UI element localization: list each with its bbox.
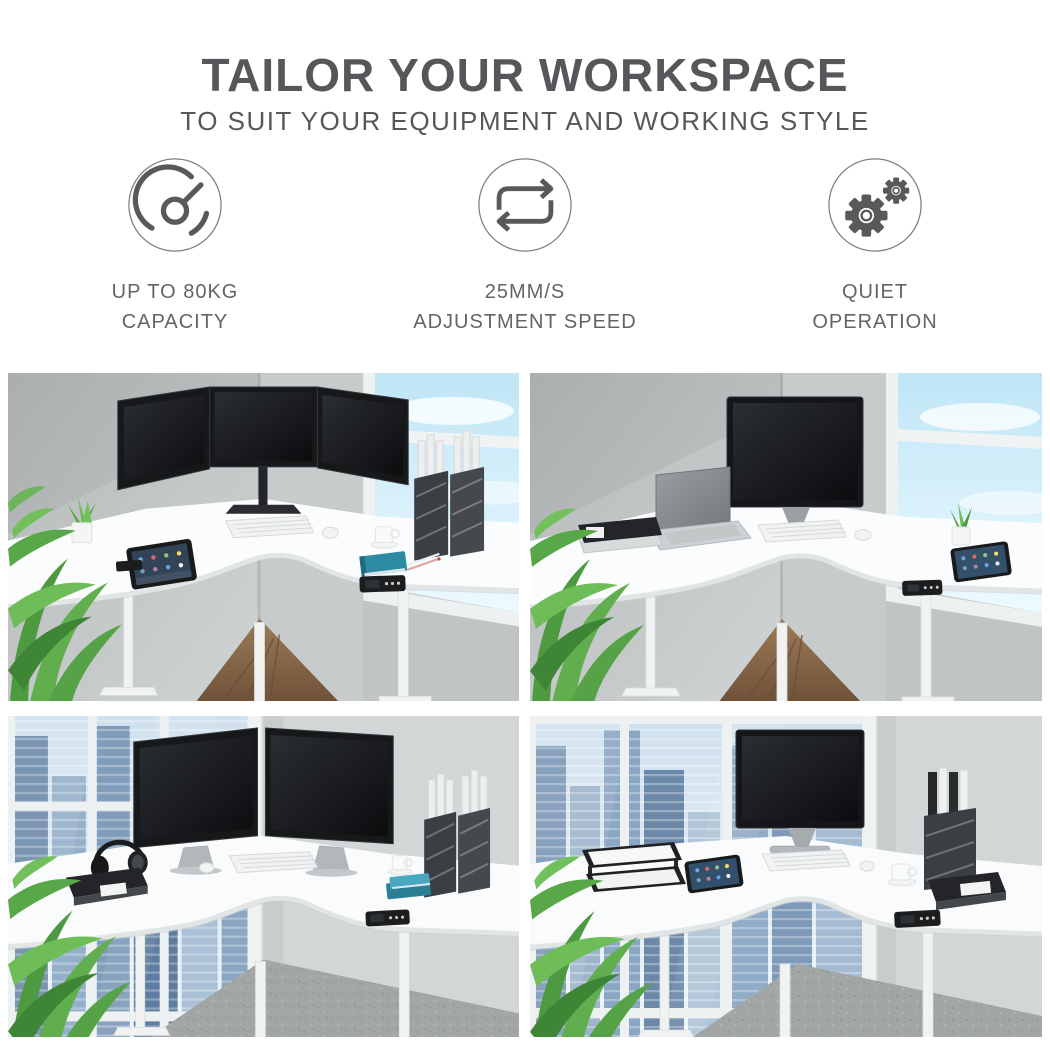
gallery-photo-monitor-laptop: [530, 373, 1042, 701]
page-title: TAILOR YOUR WORKSPACE: [0, 48, 1050, 102]
feature-capacity: UP TO 80KG CAPACITY: [0, 157, 350, 337]
page-subtitle: TO SUIT YOUR EQUIPMENT AND WORKING STYLE: [0, 106, 1050, 137]
desk-controller: [894, 910, 941, 928]
gears-icon: [827, 157, 923, 253]
desk-controller: [365, 909, 410, 926]
coffee-cup: [388, 856, 412, 875]
gallery-photo-dual-monitor: [8, 716, 519, 1037]
feature-quiet: QUIET OPERATION: [700, 157, 1050, 337]
feature-label: QUIET OPERATION: [812, 277, 937, 337]
mouse: [860, 861, 874, 871]
photo-gallery: [8, 373, 1042, 1037]
gallery-photo-single-monitor: [530, 716, 1042, 1037]
feature-label: 25MM/S ADJUSTMENT SPEED: [413, 277, 636, 337]
notebooks: [385, 873, 431, 899]
cycle-arrows-icon: [477, 157, 573, 253]
features-row: UP TO 80KG CAPACITY 25MM/S ADJUSTMENT SP…: [0, 157, 1050, 337]
mouse: [322, 527, 338, 538]
gallery-photo-triple-monitor: [8, 373, 519, 701]
magazine-files: [924, 768, 976, 890]
mouse: [855, 530, 871, 541]
speedometer-icon: [127, 157, 223, 253]
mouse: [200, 863, 214, 873]
feature-label: UP TO 80KG CAPACITY: [112, 277, 239, 337]
desk-controller: [902, 580, 942, 596]
coffee-cup: [371, 527, 399, 548]
feature-speed: 25MM/S ADJUSTMENT SPEED: [350, 157, 700, 337]
